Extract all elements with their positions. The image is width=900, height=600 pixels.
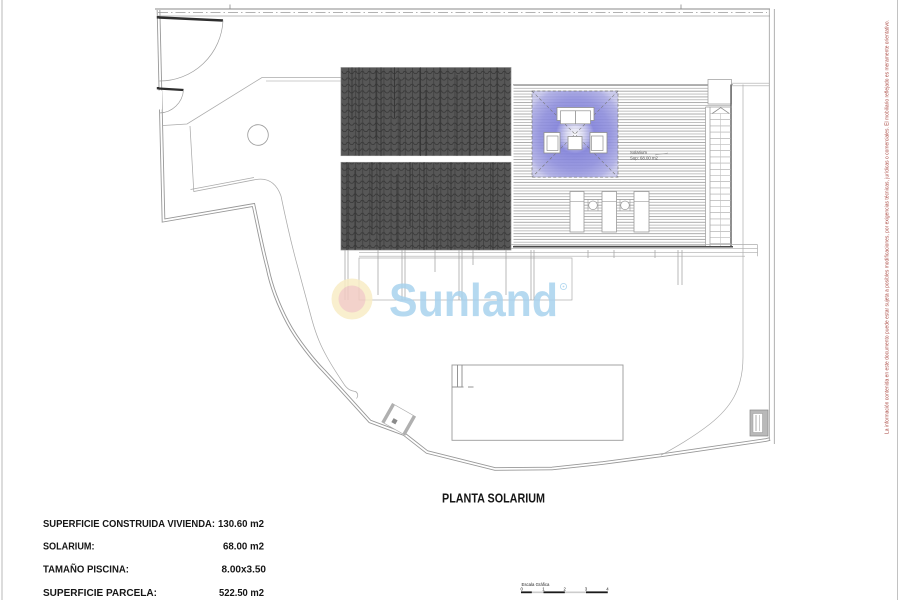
svg-text:SUPERFICIE CONSTRUIDA VIVIENDA: SUPERFICIE CONSTRUIDA VIVIENDA:	[43, 519, 215, 530]
svg-text:130.60 m2: 130.60 m2	[218, 519, 264, 530]
svg-text:SUPERFICIE PARCELA:: SUPERFICIE PARCELA:	[43, 588, 157, 599]
svg-text:PLANTA SOLARIUM: PLANTA SOLARIUM	[442, 492, 545, 506]
svg-text:SOLARIUM:: SOLARIUM:	[43, 542, 95, 553]
svg-text:TAMAÑO PISCINA:: TAMAÑO PISCINA:	[43, 563, 129, 576]
svg-text:Sup: 68.00 m2: Sup: 68.00 m2	[630, 156, 659, 161]
svg-text:68.00 m2: 68.00 m2	[223, 542, 264, 553]
svg-text:522.50 m2: 522.50 m2	[219, 588, 264, 599]
svg-text:Solarium: Solarium	[630, 150, 647, 155]
svg-text:8.00x3.50: 8.00x3.50	[222, 565, 267, 576]
svg-text:Sunland: Sunland	[389, 274, 558, 326]
svg-text:La información contenida en es: La información contenida en este documen…	[885, 20, 891, 434]
svg-text:Escala Gráfica: Escala Gráfica	[522, 582, 551, 587]
